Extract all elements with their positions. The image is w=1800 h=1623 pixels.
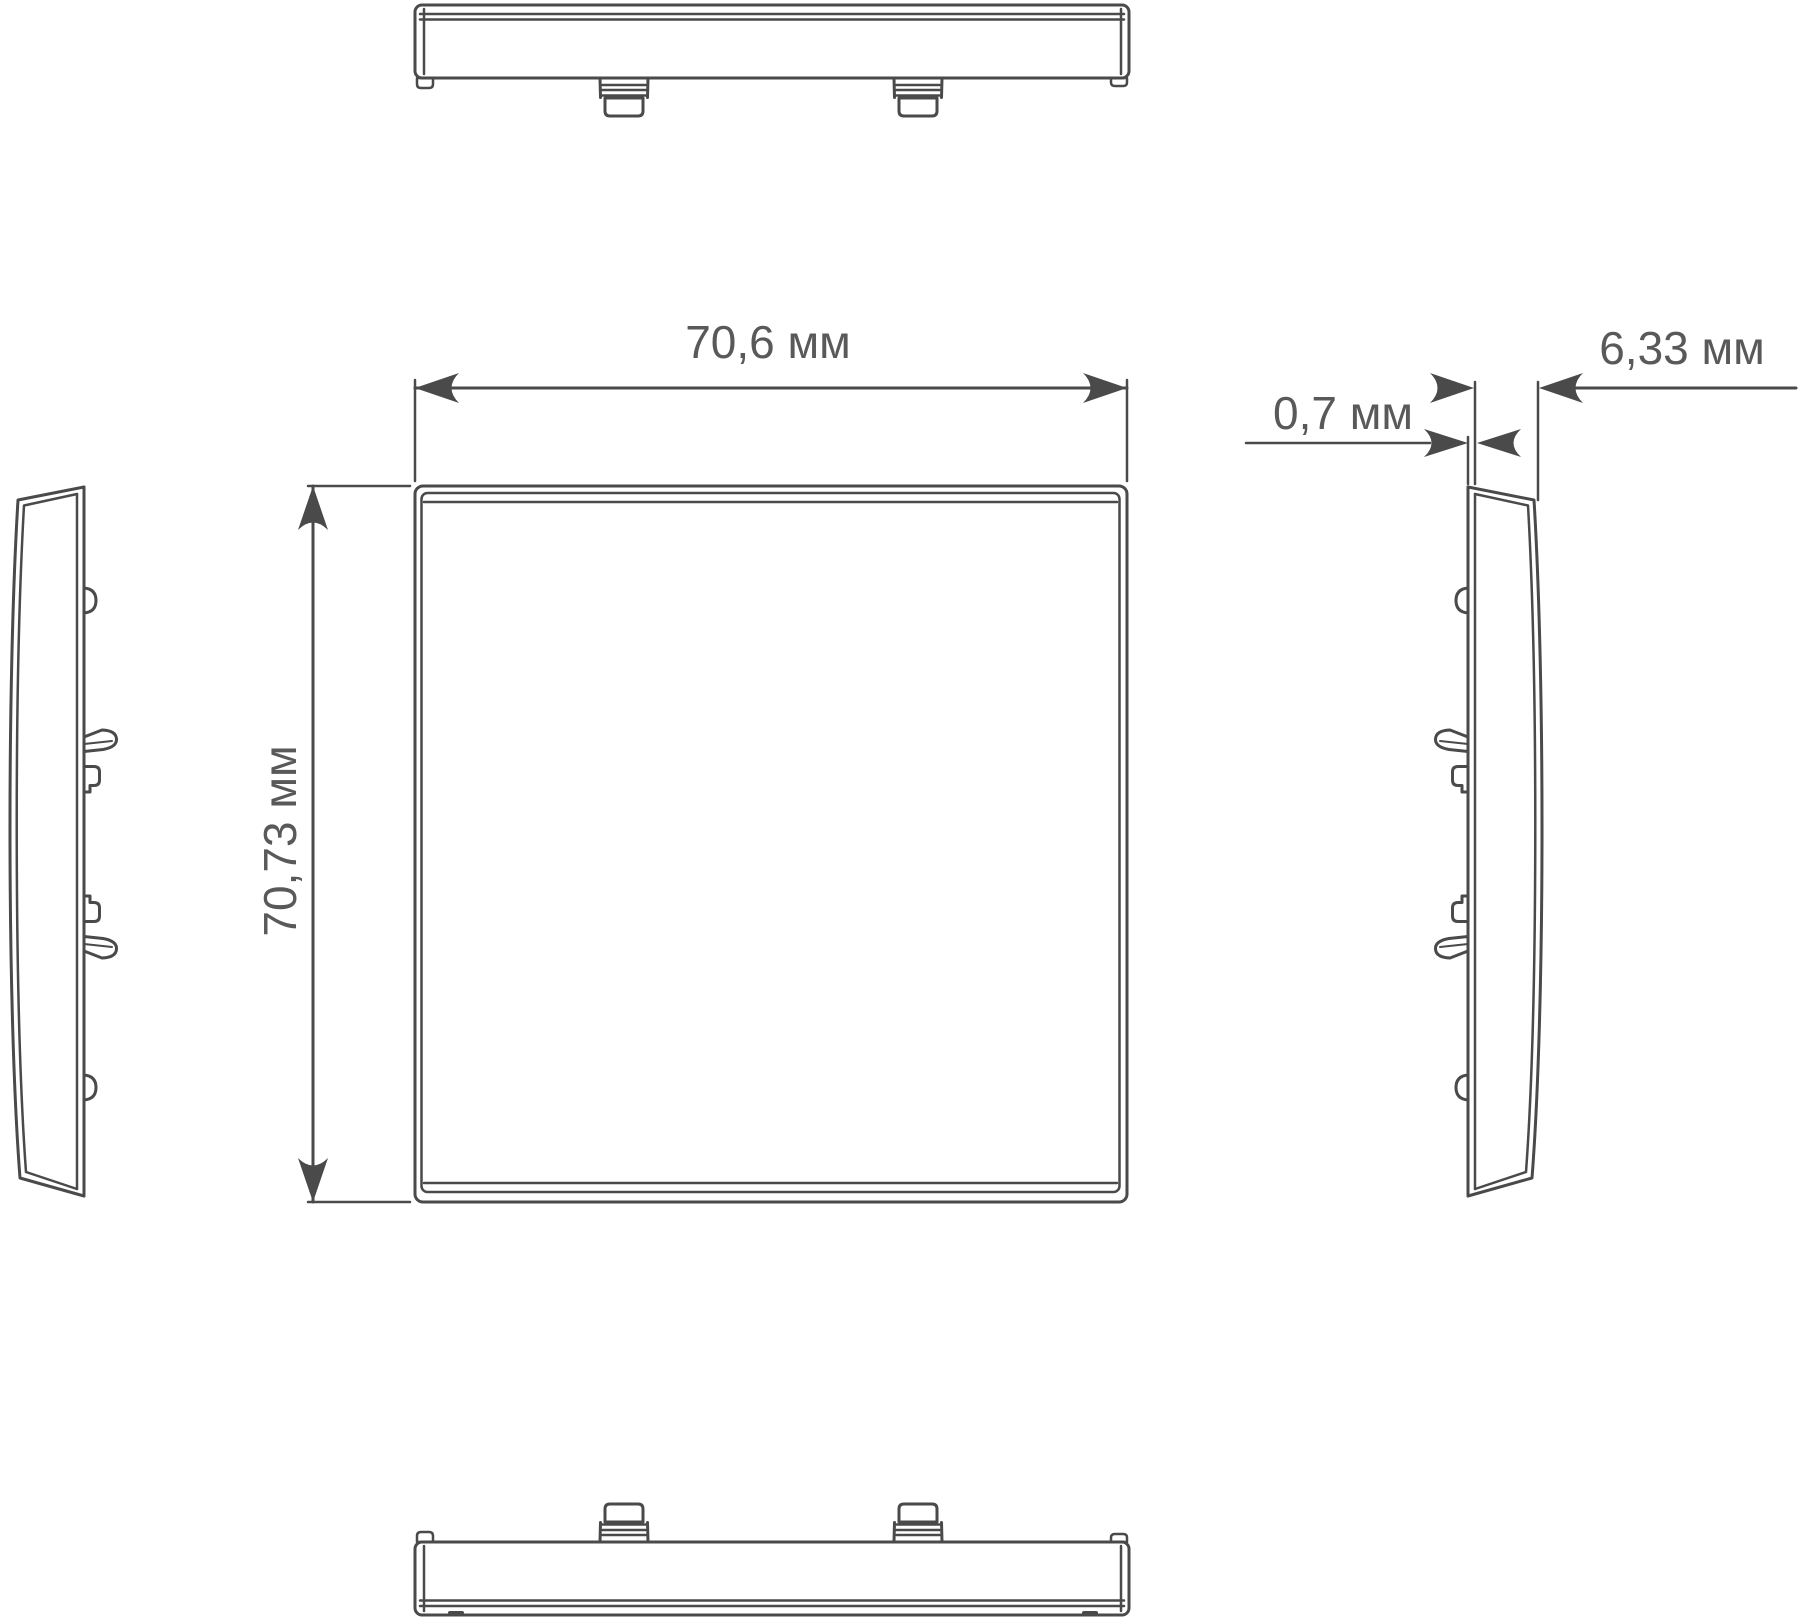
depth-dimension-label: 6,33 мм — [1599, 322, 1765, 374]
top-view — [415, 5, 1129, 116]
arrowhead-right — [1430, 373, 1474, 403]
bottom-view — [415, 1504, 1129, 1616]
lip-thickness-dimension: 0,7 мм — [1246, 387, 1521, 484]
height-dimension-label: 70,73 мм — [254, 745, 306, 936]
front-view-inner-edge — [422, 493, 1120, 1192]
bottom-view-body — [415, 1542, 1129, 1615]
bottom-view-left-notch — [448, 1611, 464, 1616]
top-view-right-clip — [894, 78, 942, 116]
front-view — [415, 486, 1127, 1202]
top-view-left-clip — [600, 78, 648, 116]
arrowhead-left — [1477, 429, 1521, 457]
height-dimension: 70,73 мм — [254, 486, 410, 1202]
bottom-view-right-clip — [894, 1504, 942, 1542]
top-view-body — [415, 5, 1129, 78]
bottom-view-right-foot — [1111, 1534, 1127, 1542]
top-view-right-foot — [1111, 78, 1127, 86]
bottom-view-right-notch — [1082, 1611, 1098, 1616]
width-dimension: 70,6 мм — [415, 316, 1127, 481]
width-dimension-label: 70,6 мм — [685, 316, 851, 368]
technical-drawing-canvas: 70,6 мм 70,73 мм 0,7 мм 6,33 мм — [0, 0, 1800, 1623]
right-side-view — [1435, 487, 1542, 1196]
lip-thickness-label: 0,7 мм — [1273, 387, 1413, 439]
depth-dimension: 6,33 мм — [1430, 322, 1796, 500]
left-side-view — [10, 487, 117, 1196]
front-view-outer-edge — [415, 486, 1127, 1202]
bottom-view-left-clip — [600, 1504, 648, 1542]
